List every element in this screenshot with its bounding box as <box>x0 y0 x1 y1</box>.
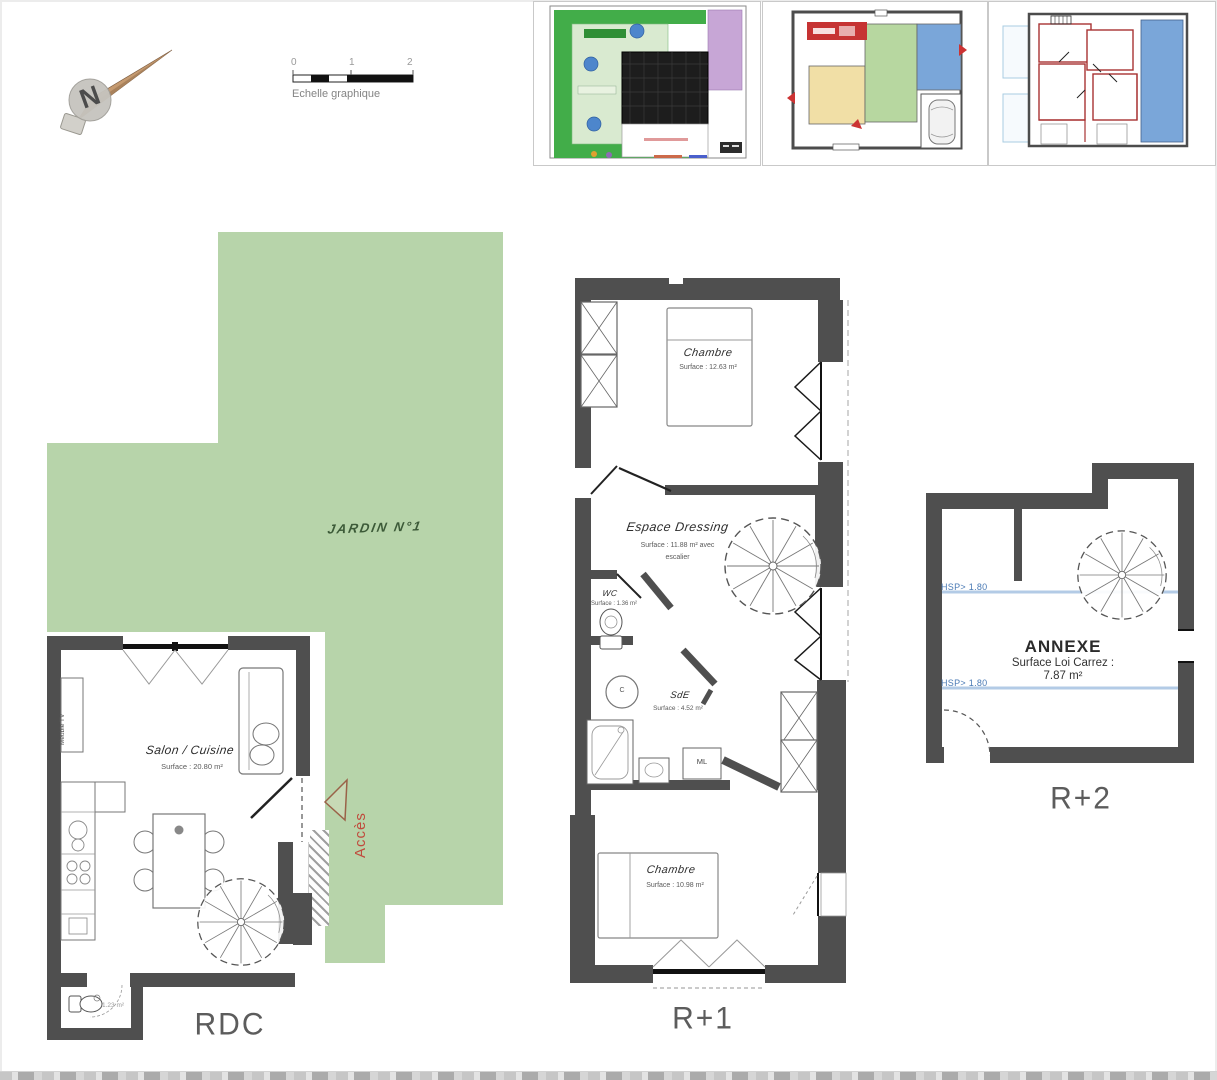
sofa <box>239 668 283 774</box>
r1-wardrobe-top-2 <box>581 355 617 407</box>
r1-wardrobe-top-1 <box>581 302 617 354</box>
rdc-toilet <box>69 995 102 1012</box>
r2-annexe-name: ANNEXE <box>983 637 1143 657</box>
thumbnail-floor-plan-colored[interactable] <box>762 1 988 166</box>
bottom-crop-strip <box>0 1071 1217 1080</box>
access-label: Accès <box>352 812 369 858</box>
r1-dressing-name: Espace Dressing <box>604 520 751 534</box>
r1-plan <box>565 270 860 1020</box>
r1-wc-name: WC <box>587 588 632 598</box>
rdc-plan <box>45 628 335 1043</box>
r1-floor-label: R+1 <box>648 1001 758 1037</box>
r1-dressing-surface-2: escalier <box>605 554 750 561</box>
scale-tick-2: 2 <box>407 57 413 68</box>
floor-plan-sheet: N 0 1 2 Echelle graphique <box>0 0 1217 1080</box>
washing-machine-label: ML <box>686 757 718 766</box>
r2-floor-label: R+2 <box>1024 781 1138 817</box>
r1-wc-surface: Surface : 1.36 m² <box>574 601 654 607</box>
scale-bar <box>290 70 420 88</box>
rdc-salon-name: Salon / Cuisine <box>119 743 261 757</box>
thumbnail-site-plan-drawing <box>534 2 760 165</box>
water-heater-label: C <box>614 687 630 694</box>
r2-annexe-carrez-value: 7.87 m² <box>983 670 1143 682</box>
r1-chambre-bottom-name: Chambre <box>611 864 731 876</box>
r2-window <box>1178 630 1194 662</box>
tv-cabinet-label: Meuble TV <box>59 714 66 745</box>
scale-caption: Echelle graphique <box>292 88 380 100</box>
r1-sde-surface: Surface : 4.52 m² <box>638 705 718 712</box>
r1-toilet <box>600 609 622 649</box>
r1-sde-name: SdE <box>644 690 716 701</box>
scale-tick-1: 1 <box>349 57 355 68</box>
r1-chambre-top-surface: Surface : 12.63 m² <box>648 364 768 371</box>
r2-floor-fill <box>938 476 1186 756</box>
r2-annexe-carrez-label: Surface Loi Carrez : <box>983 657 1143 669</box>
r1-chambre-top-name: Chambre <box>647 347 769 359</box>
rdc-floor-label: RDC <box>182 1007 278 1043</box>
rdc-wc-surface: 1.23 m² <box>102 1002 124 1009</box>
r1-top-notch <box>669 272 683 284</box>
rdc-spiral-stair <box>198 879 284 965</box>
r1-wardrobe-right-1 <box>781 692 817 744</box>
rdc-salon-surface: Surface : 20.80 m² <box>122 762 262 771</box>
thumbnail-site-plan[interactable] <box>533 1 761 166</box>
scale-tick-0: 0 <box>291 57 297 68</box>
sink <box>639 758 669 783</box>
r1-chambre-bottom-surface: Surface : 10.98 m² <box>612 882 738 889</box>
r2-spiral-stair <box>1078 531 1166 619</box>
thumbnail-floor-plan-outline[interactable] <box>988 1 1216 166</box>
r2-hsp-top-label: HSP> 1.80 <box>941 582 987 592</box>
r2-hsp-bottom-label: HSP> 1.80 <box>941 678 987 688</box>
shower <box>587 720 633 784</box>
r1-wardrobe-right-2 <box>781 740 817 792</box>
r1-dressing-surface-1: Surface : 11.88 m² avec <box>605 542 750 549</box>
thumbnail-floor-plan-outline-drawing <box>989 2 1215 165</box>
thumbnail-floor-plan-colored-drawing <box>763 2 987 165</box>
